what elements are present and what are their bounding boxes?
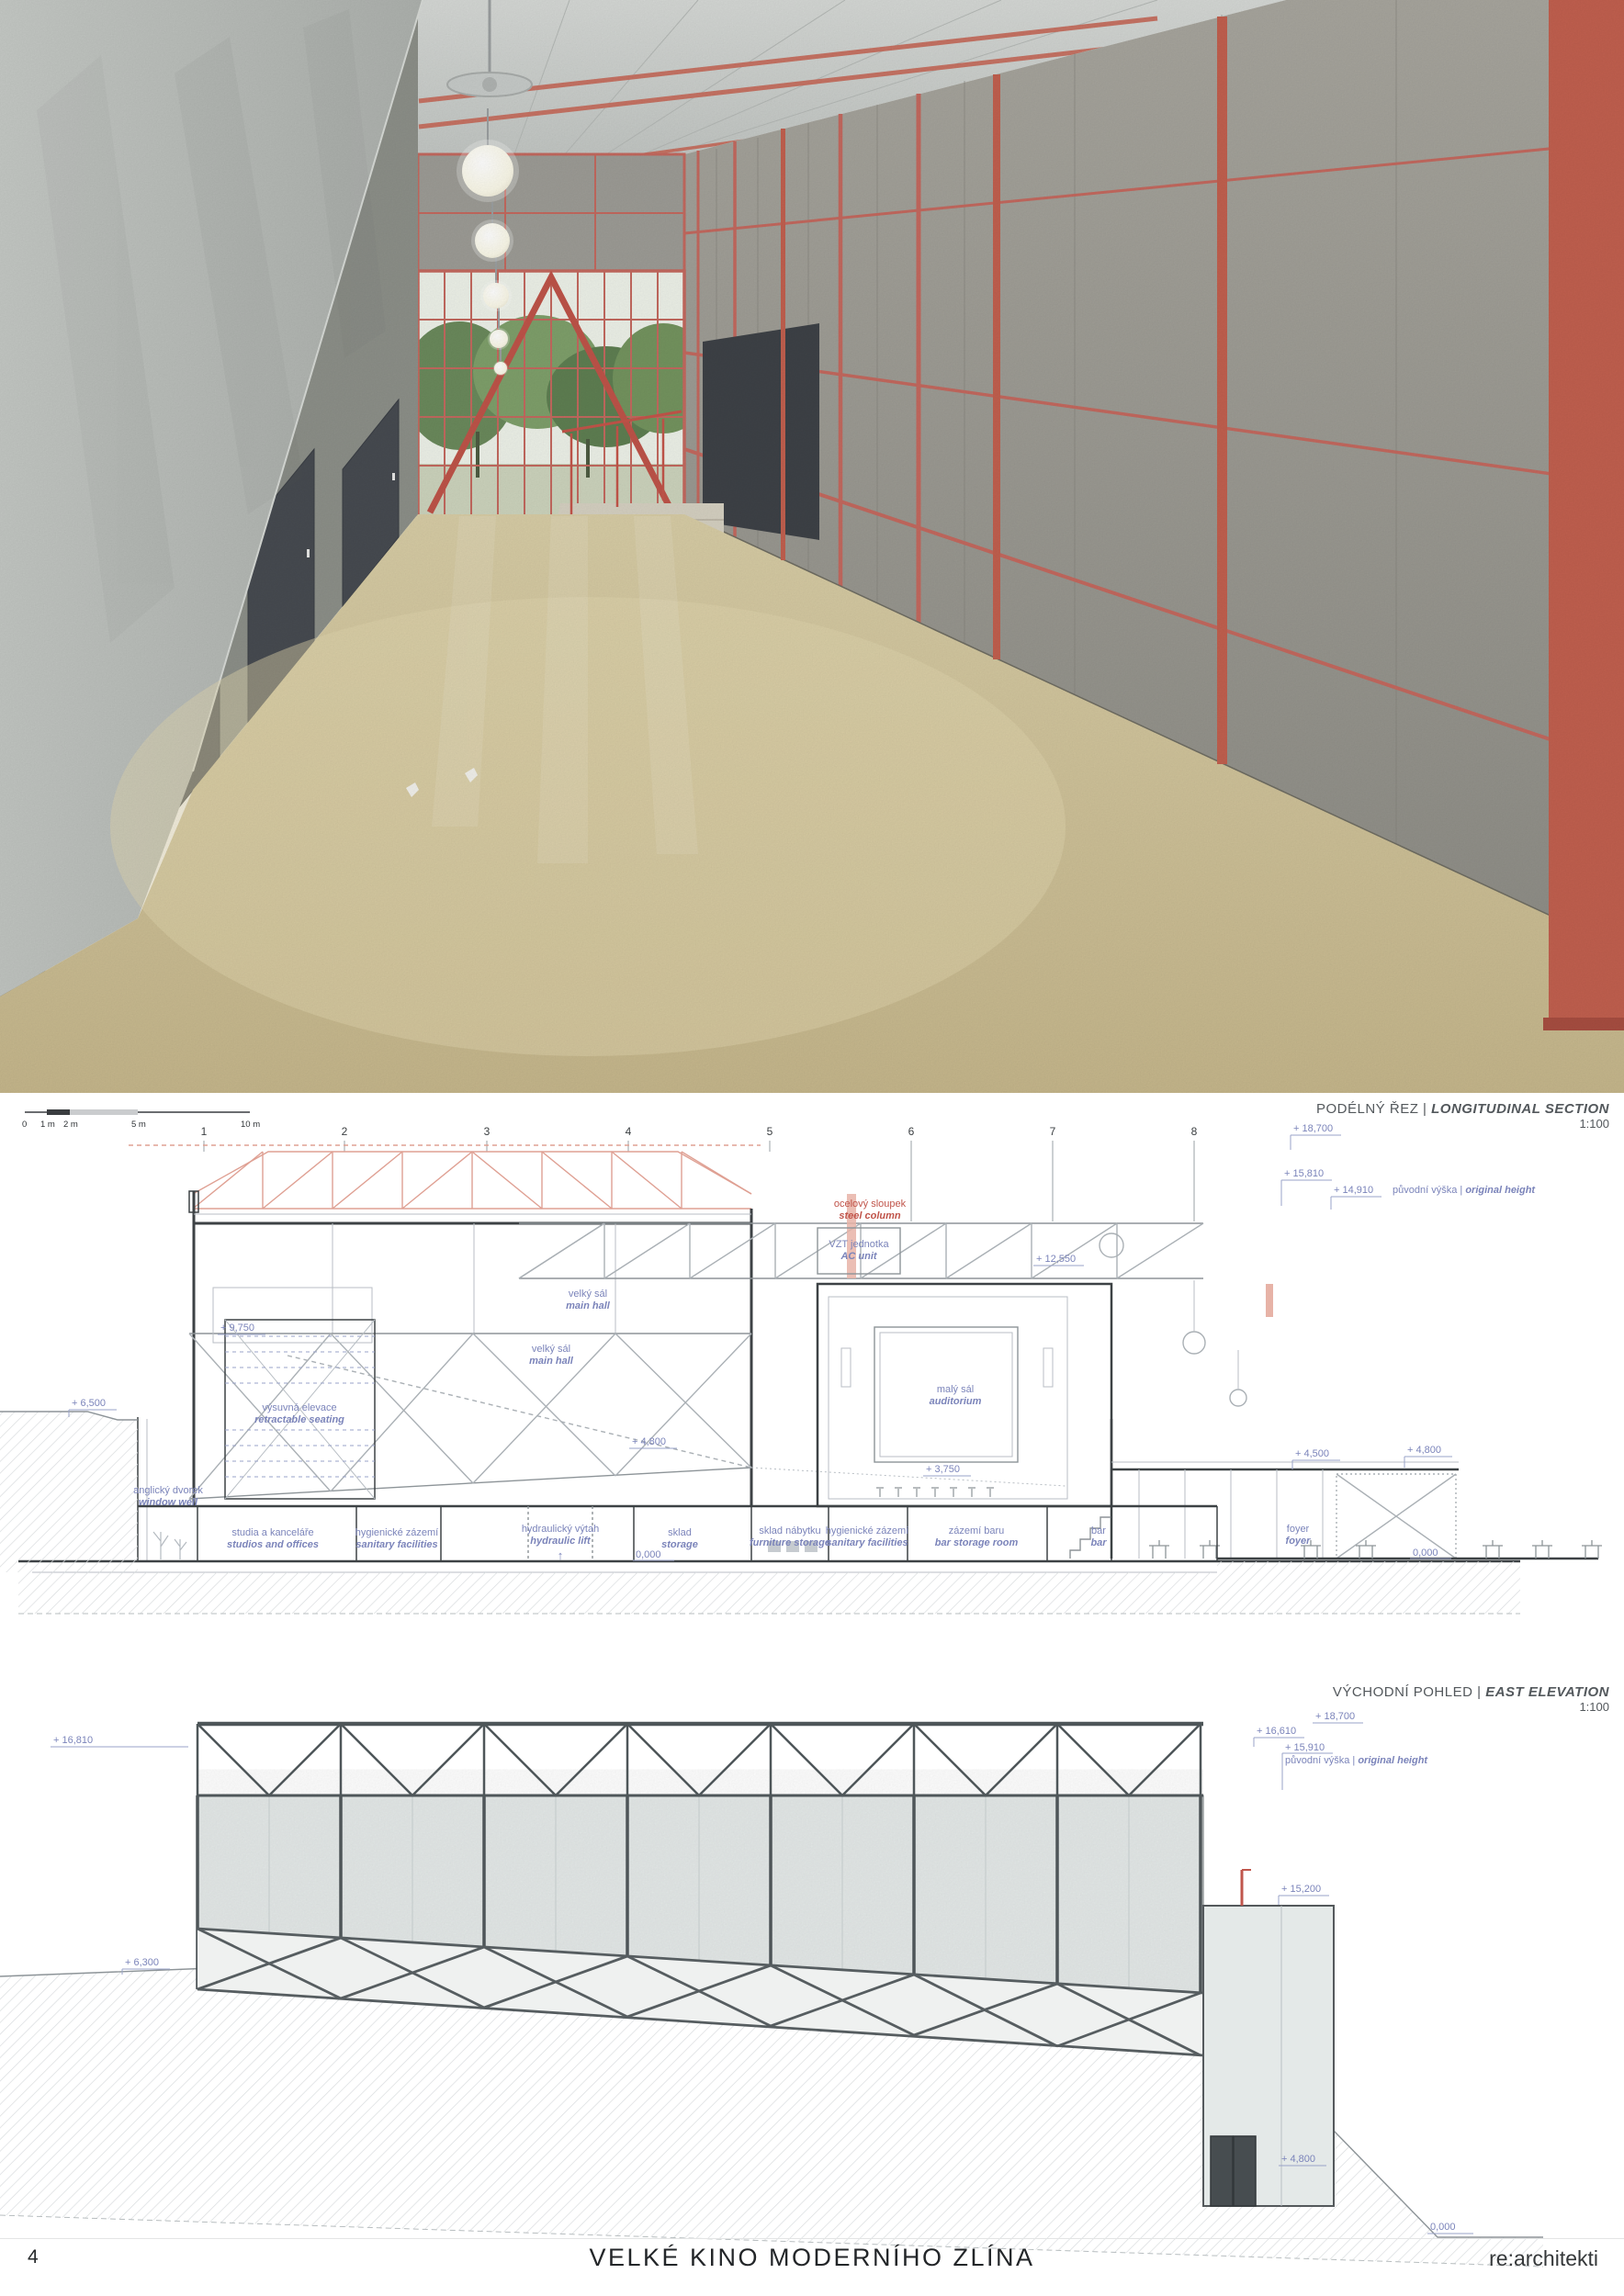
- level-marker: + 4,800: [1404, 1445, 1452, 1468]
- level-marker: + 14,910 původní výška | original height: [1331, 1185, 1536, 1210]
- level-marker: 0,000: [1427, 2222, 1473, 2234]
- svg-text:retractable seating: retractable seating: [254, 1414, 344, 1425]
- room-label: výsuvná elevace retractable seating: [254, 1402, 344, 1425]
- level-marker: + 9,750: [218, 1322, 265, 1334]
- original-height-note: původní výška | original height: [1285, 1755, 1428, 1766]
- level-marker: 0,000: [633, 1549, 674, 1560]
- elevation-top-truss: [197, 1724, 1203, 1795]
- audience-chairs: [876, 1488, 994, 1497]
- svg-text:+ 4,800: + 4,800: [1407, 1445, 1441, 1456]
- elevation-title: VÝCHODNÍ POHLED | EAST ELEVATION: [1333, 1684, 1610, 1700]
- svg-text:+ 15,200: + 15,200: [1281, 1884, 1321, 1895]
- grid-2: 2: [342, 1125, 348, 1138]
- room-label: foyer foyer: [1286, 1524, 1312, 1547]
- room-label: hydraulický výtah hydraulic lift ↑: [522, 1524, 599, 1562]
- room-label: sklad nábytku furniture storage: [750, 1525, 830, 1548]
- svg-text:+ 18,700: + 18,700: [1315, 1711, 1355, 1722]
- section-red-truss: [129, 1145, 761, 1209]
- scalebar-5m: 5 m: [131, 1120, 146, 1130]
- grid-3: 3: [484, 1125, 491, 1138]
- grid-4: 4: [626, 1125, 632, 1138]
- grid-1: 1: [201, 1125, 208, 1138]
- svg-text:velký sál: velký sál: [532, 1344, 570, 1355]
- elevation-scale: 1:100: [1579, 1700, 1609, 1714]
- svg-text:malý sál: malý sál: [937, 1384, 974, 1395]
- svg-text:+ 4,500: + 4,500: [1295, 1448, 1329, 1459]
- level-marker: + 4,500: [1292, 1448, 1340, 1469]
- scalebar-10m: 10 m: [241, 1120, 260, 1130]
- level-marker: + 16,810: [51, 1735, 188, 1747]
- plants: [153, 1532, 186, 1559]
- svg-text:hygienické zázemí: hygienické zázemí: [826, 1525, 909, 1536]
- room-label: sklad storage: [661, 1527, 698, 1550]
- svg-text:anglický dvorek: anglický dvorek: [133, 1485, 203, 1496]
- svg-text:main hall: main hall: [566, 1300, 611, 1311]
- section-terrain: [0, 1412, 1520, 1614]
- auditorium: [818, 1280, 1246, 1506]
- svg-text:studia a kanceláře: studia a kanceláře: [231, 1527, 313, 1538]
- room-label: studia a kanceláře studios and offices: [227, 1527, 319, 1550]
- section-room-labels: velký sál main hall velký sál main hall …: [133, 1289, 1311, 1562]
- svg-text:foyer: foyer: [1286, 1536, 1312, 1547]
- svg-text:zázemí baru: zázemí baru: [949, 1525, 1005, 1536]
- east-elevation: VÝCHODNÍ POHLED | EAST ELEVATION 1:100 +…: [0, 1684, 1610, 2267]
- grid-numbers: 1 2 3 4 5 6 7 8: [201, 1125, 1198, 1221]
- svg-text:+ 16,610: + 16,610: [1257, 1726, 1296, 1737]
- technical-drawings: 0 1 m 2 m 5 m 10 m 1 2 3 4 5 6 7 8: [0, 0, 1624, 2296]
- svg-text:main hall: main hall: [529, 1356, 574, 1367]
- svg-text:sanitary facilities: sanitary facilities: [355, 1539, 437, 1550]
- svg-text:bar: bar: [1090, 1537, 1107, 1548]
- section-scale: 1:100: [1579, 1117, 1609, 1131]
- room-label: anglický dvorek window well: [133, 1485, 203, 1508]
- level-marker: + 15,910 původní výška | original height: [1282, 1742, 1428, 1790]
- ac-unit-note: VZT jednotka AC unit: [829, 1239, 889, 1262]
- room-label: bar bar: [1090, 1525, 1107, 1548]
- grid-7: 7: [1050, 1125, 1056, 1138]
- longitudinal-section: 0 1 m 2 m 5 m 10 m 1 2 3 4 5 6 7 8: [0, 1101, 1610, 1614]
- svg-text:+ 3,750: + 3,750: [926, 1464, 960, 1475]
- room-label: hygienické zázemí sanitary facilities: [826, 1525, 909, 1548]
- level-marker: 0,000: [1410, 1548, 1451, 1559]
- svg-text:bar: bar: [1091, 1525, 1106, 1536]
- svg-text:studios and offices: studios and offices: [227, 1539, 319, 1550]
- foyer: [1070, 1419, 1602, 1559]
- room-label: velký sál main hall: [566, 1289, 611, 1311]
- section-title: PODÉLNÝ ŘEZ | LONGITUDINAL SECTION: [1316, 1101, 1610, 1117]
- svg-text:+ 4,800: + 4,800: [1281, 2154, 1315, 2165]
- svg-text:+ 14,910: + 14,910: [1334, 1185, 1373, 1196]
- level-marker: + 15,810: [1281, 1168, 1332, 1206]
- level-marker: + 15,200: [1279, 1884, 1329, 1905]
- room-label: malý sál auditorium: [930, 1384, 982, 1407]
- original-height-note: původní výška | original height: [1393, 1185, 1536, 1196]
- svg-text:velký sál: velký sál: [569, 1289, 607, 1300]
- svg-text:ocelový sloupek: ocelový sloupek: [834, 1199, 907, 1210]
- svg-text:+ 15,910: + 15,910: [1285, 1742, 1325, 1753]
- svg-text:hydraulic lift: hydraulic lift: [530, 1536, 592, 1547]
- main-hall: [189, 1191, 1066, 1506]
- svg-text:+ 6,300: + 6,300: [125, 1957, 159, 1968]
- svg-text:sklad: sklad: [668, 1527, 692, 1538]
- section-level-markers: + 18,700 + 15,810 + 14,910 původní výška…: [69, 1123, 1536, 1560]
- scale-bar: 0 1 m 2 m 5 m 10 m: [22, 1109, 260, 1130]
- scalebar-2m: 2 m: [63, 1120, 78, 1130]
- steel-column-note: ocelový sloupek steel column: [834, 1199, 907, 1221]
- board-title: VELKÉ KINO MODERNÍHO ZLÍNA: [0, 2244, 1624, 2272]
- svg-text:+ 16,810: + 16,810: [53, 1735, 93, 1746]
- svg-text:window well: window well: [139, 1497, 198, 1508]
- level-marker: + 3,750: [923, 1464, 971, 1476]
- grid-5: 5: [767, 1125, 773, 1138]
- svg-text:výsuvná elevace: výsuvná elevace: [262, 1402, 336, 1413]
- level-marker: + 4,800: [629, 1436, 677, 1448]
- level-marker: + 12,550: [1033, 1254, 1084, 1266]
- room-label: velký sál main hall: [529, 1344, 574, 1367]
- svg-text:+ 4,800: + 4,800: [632, 1436, 666, 1447]
- svg-text:sklad nábytku: sklad nábytku: [759, 1525, 820, 1536]
- svg-text:+ 9,750: + 9,750: [220, 1322, 254, 1334]
- svg-text:+ 12,550: + 12,550: [1036, 1254, 1076, 1265]
- svg-text:+ 6,500: + 6,500: [72, 1398, 106, 1409]
- presentation-board: 0 1 m 2 m 5 m 10 m 1 2 3 4 5 6 7 8: [0, 0, 1624, 2296]
- grid-8: 8: [1191, 1125, 1198, 1138]
- svg-text:hydraulický výtah: hydraulický výtah: [522, 1524, 599, 1535]
- scalebar-1m: 1 m: [40, 1120, 55, 1130]
- svg-text:storage: storage: [661, 1539, 698, 1550]
- level-marker: + 18,700: [1291, 1123, 1341, 1150]
- scalebar-0: 0: [22, 1120, 27, 1130]
- annex-door: [1211, 2136, 1256, 2206]
- svg-text:0,000: 0,000: [1430, 2222, 1456, 2233]
- svg-text:+ 18,700: + 18,700: [1293, 1123, 1333, 1134]
- svg-text:bar storage room: bar storage room: [935, 1537, 1019, 1548]
- room-label: hygienické zázemí sanitary facilities: [355, 1527, 439, 1550]
- svg-text:AC unit: AC unit: [840, 1251, 877, 1262]
- svg-text:0,000: 0,000: [636, 1549, 661, 1560]
- svg-text:0,000: 0,000: [1413, 1548, 1438, 1559]
- grid-6: 6: [908, 1125, 915, 1138]
- footer: 4 VELKÉ KINO MODERNÍHO ZLÍNA re:architek…: [0, 2238, 1624, 2296]
- svg-text:furniture storage: furniture storage: [750, 1537, 830, 1548]
- studio-name: re:architekti: [1489, 2246, 1598, 2271]
- svg-text:+ 15,810: + 15,810: [1284, 1168, 1324, 1179]
- level-marker: + 18,700: [1313, 1711, 1363, 1723]
- svg-text:foyer: foyer: [1287, 1524, 1310, 1535]
- up-arrow-icon: ↑: [558, 1548, 564, 1562]
- svg-text:VZT jednotka: VZT jednotka: [829, 1239, 889, 1250]
- svg-text:sanitary facilities: sanitary facilities: [826, 1537, 908, 1548]
- svg-text:hygienické zázemí: hygienické zázemí: [355, 1527, 439, 1538]
- svg-text:auditorium: auditorium: [930, 1396, 982, 1407]
- room-label: zázemí baru bar storage room: [935, 1525, 1019, 1548]
- svg-text:steel column: steel column: [839, 1210, 901, 1221]
